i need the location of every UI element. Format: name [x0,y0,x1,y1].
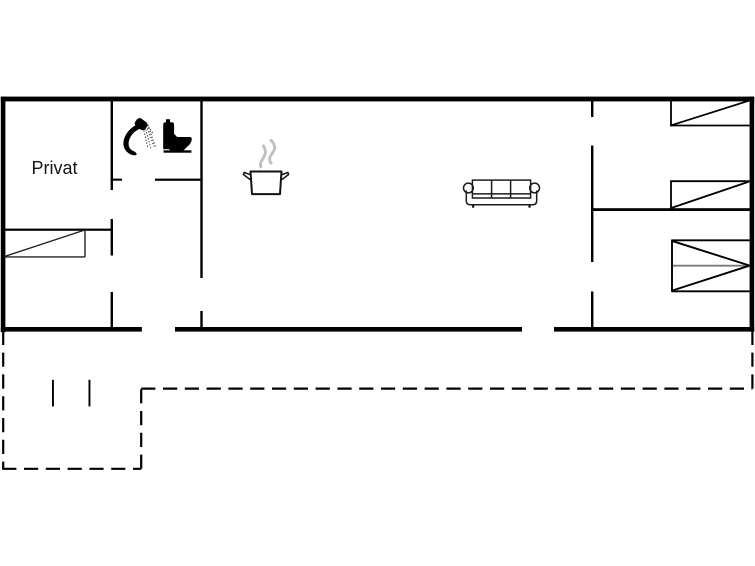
svg-text:Privat: Privat [32,158,78,178]
